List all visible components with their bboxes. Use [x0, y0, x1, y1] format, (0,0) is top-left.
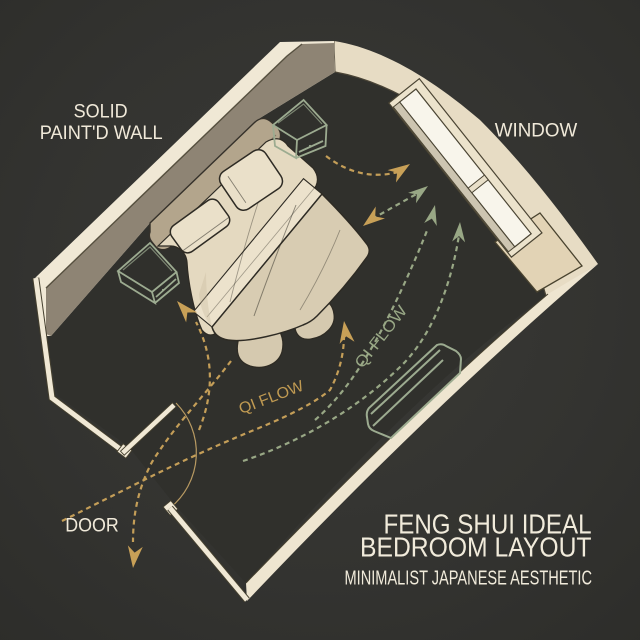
svg-text:MINIMALIST JAPANESE AESTHETIC: MINIMALIST JAPANESE AESTHETIC	[345, 568, 593, 590]
svg-text:SOLID: SOLID	[74, 101, 128, 123]
svg-text:DOOR: DOOR	[65, 515, 119, 537]
svg-text:PAINT'D WALL: PAINT'D WALL	[40, 122, 163, 144]
svg-text:WINDOW: WINDOW	[495, 120, 578, 142]
svg-text:BEDROOM LAYOUT: BEDROOM LAYOUT	[360, 532, 592, 563]
